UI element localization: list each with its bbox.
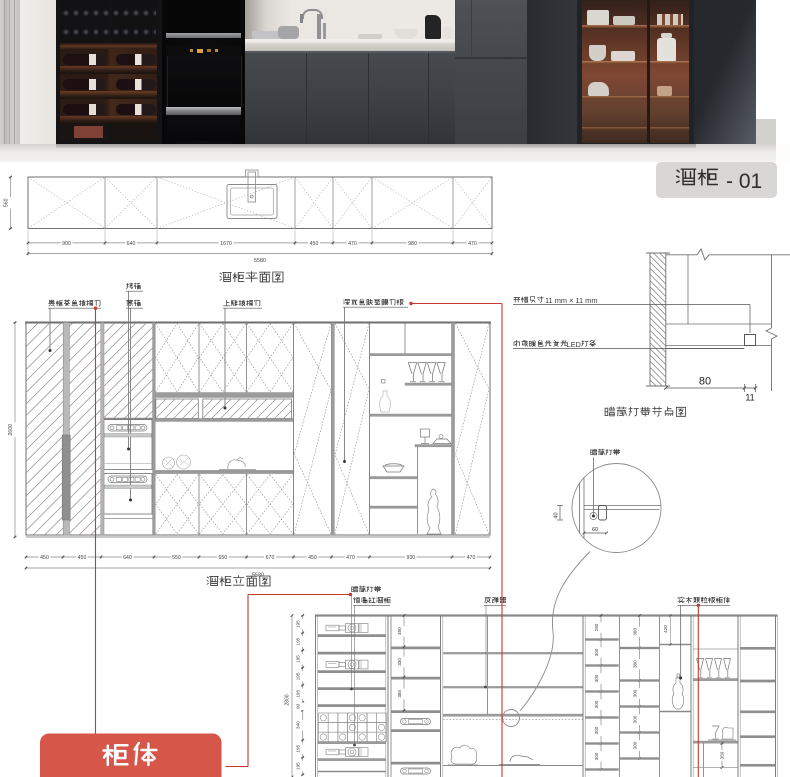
svg-text:900: 900 [62,241,71,247]
svg-text:385: 385 [397,690,402,698]
svg-text:195: 195 [296,672,301,680]
svg-text:670: 670 [266,555,275,561]
svg-text:90: 90 [296,703,301,709]
svg-text:60: 60 [592,527,598,533]
svg-text:300: 300 [594,648,599,656]
svg-text:1670: 1670 [220,241,232,247]
svg-text:LED: LED [567,340,581,349]
svg-text:930: 930 [406,555,415,561]
svg-text:195: 195 [296,620,301,628]
svg-text:550: 550 [172,555,181,561]
svg-text:2600: 2600 [8,424,14,436]
svg-text:450: 450 [40,555,49,561]
svg-text:300: 300 [633,689,638,697]
svg-text:450: 450 [310,241,319,247]
svg-text:380: 380 [633,628,638,636]
svg-text:300: 300 [594,700,599,708]
svg-text:470: 470 [468,241,477,247]
svg-text:300: 300 [594,674,599,682]
svg-text:450: 450 [308,555,317,561]
svg-text:11: 11 [745,393,754,403]
svg-text:450: 450 [78,555,87,561]
svg-text:470: 470 [467,555,476,561]
svg-text:195: 195 [296,762,301,770]
svg-text:560: 560 [4,198,10,207]
svg-text:195: 195 [296,637,301,645]
svg-text:300: 300 [633,715,638,723]
svg-text:195: 195 [296,690,301,698]
svg-text:280: 280 [594,623,599,631]
svg-text:330: 330 [397,658,402,666]
svg-text:11 mm × 11 mm: 11 mm × 11 mm [545,296,598,305]
svg-text:- 01: - 01 [726,170,762,193]
svg-text:40: 40 [554,512,560,518]
svg-text:300: 300 [633,741,638,749]
svg-text:80: 80 [699,376,711,388]
svg-text:470: 470 [348,241,357,247]
svg-text:650: 650 [218,555,227,561]
svg-text:470: 470 [346,555,355,561]
svg-text:195: 195 [296,744,301,752]
svg-text:380: 380 [633,660,638,668]
svg-text:195: 195 [296,655,301,663]
svg-text:640: 640 [123,555,132,561]
svg-text:2800: 2800 [285,694,291,705]
svg-text:300: 300 [594,726,599,734]
svg-text:350: 350 [720,751,725,759]
svg-text:980: 980 [408,241,417,247]
svg-text:340: 340 [296,721,301,729]
svg-text:640: 640 [127,241,136,247]
svg-text:300: 300 [594,752,599,760]
svg-text:420: 420 [663,625,668,633]
svg-text:350: 350 [397,627,402,635]
svg-text:5580: 5580 [254,258,266,264]
